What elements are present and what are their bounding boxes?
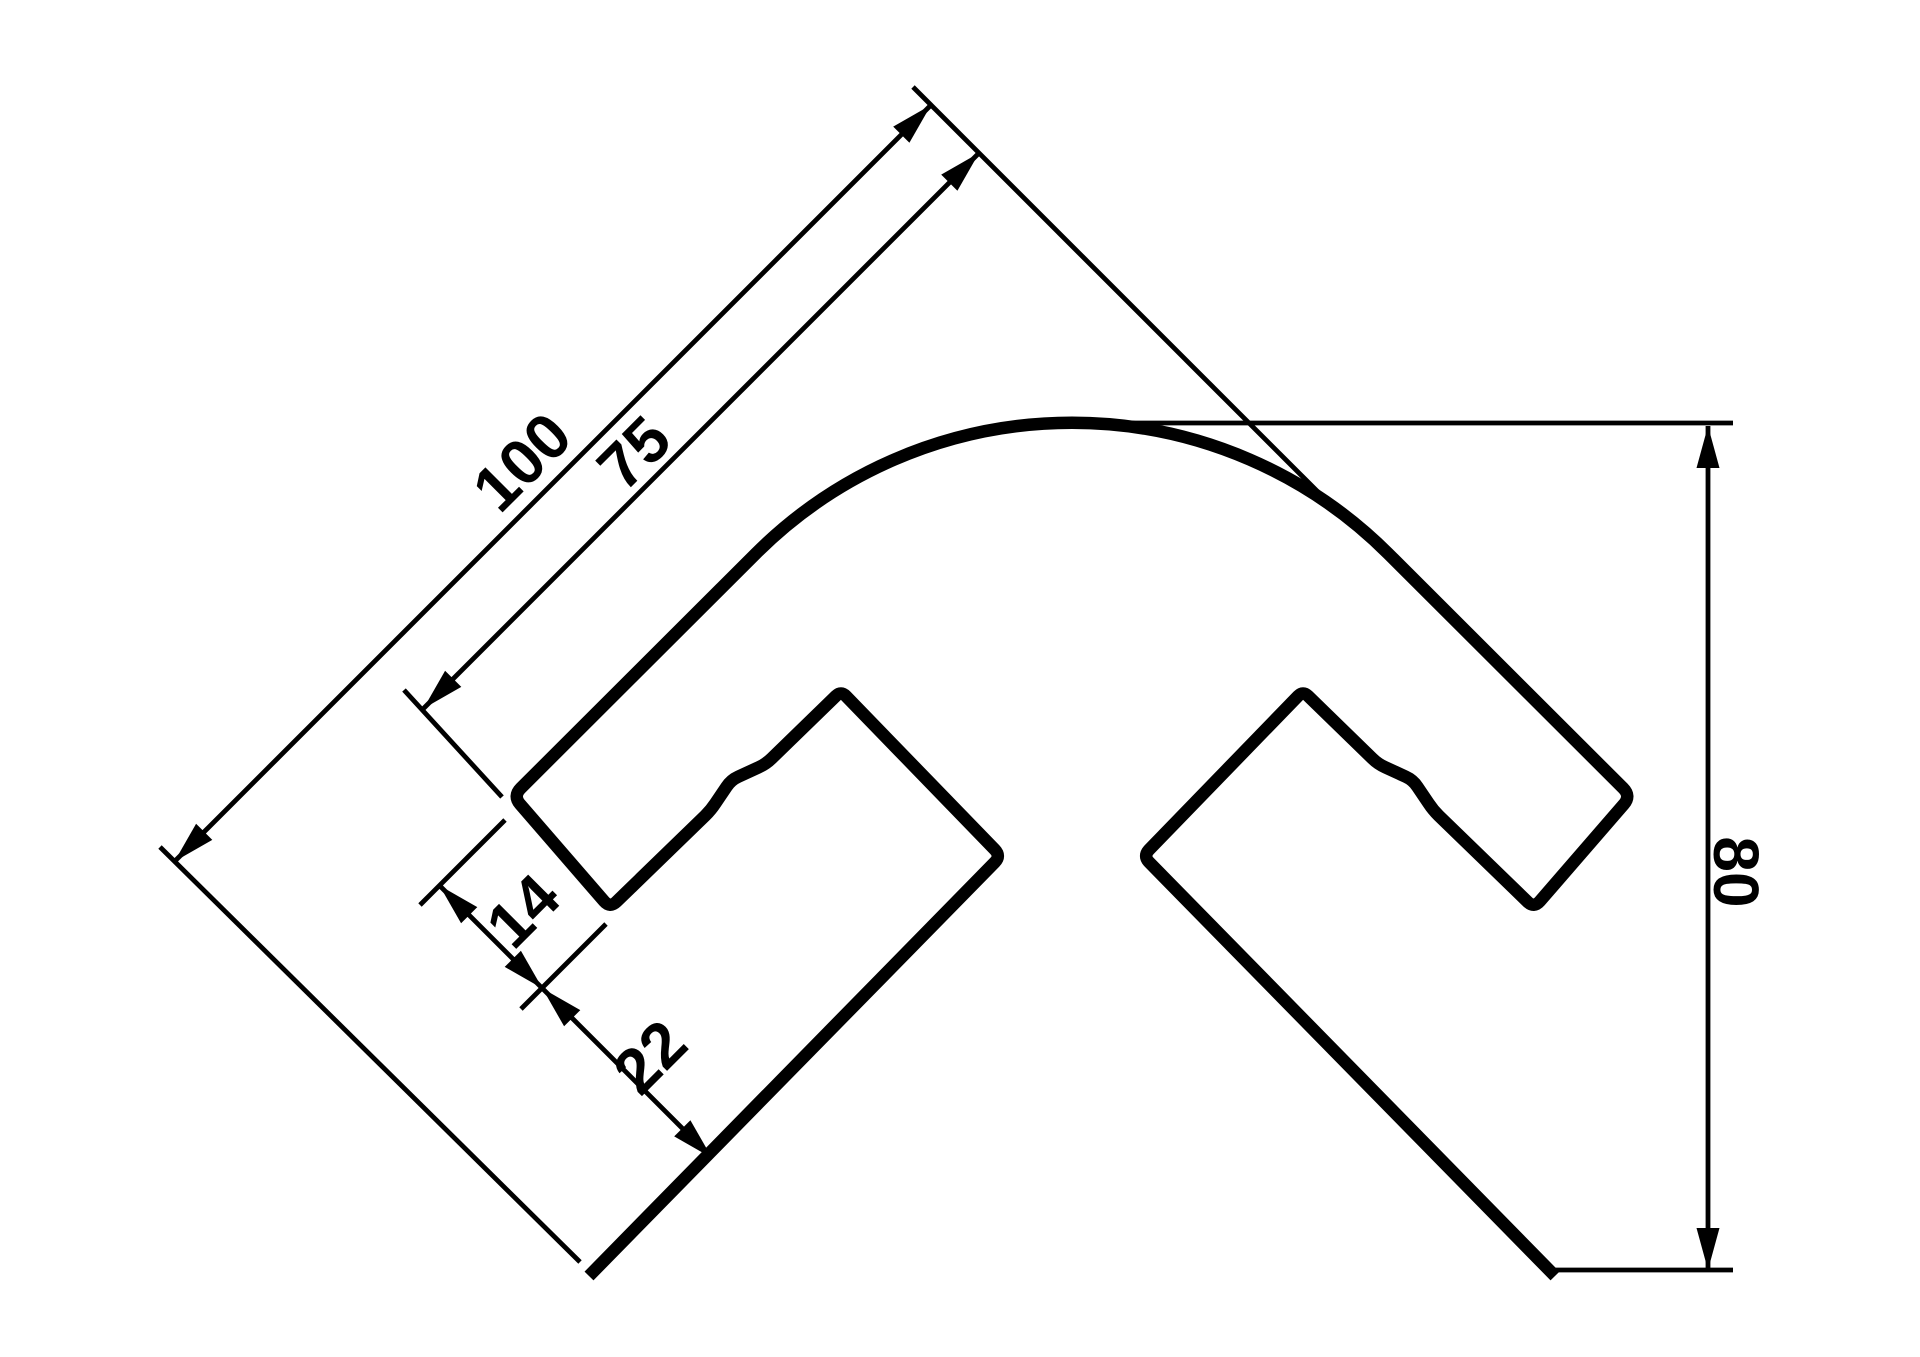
- svg-text:80: 80: [1700, 836, 1772, 907]
